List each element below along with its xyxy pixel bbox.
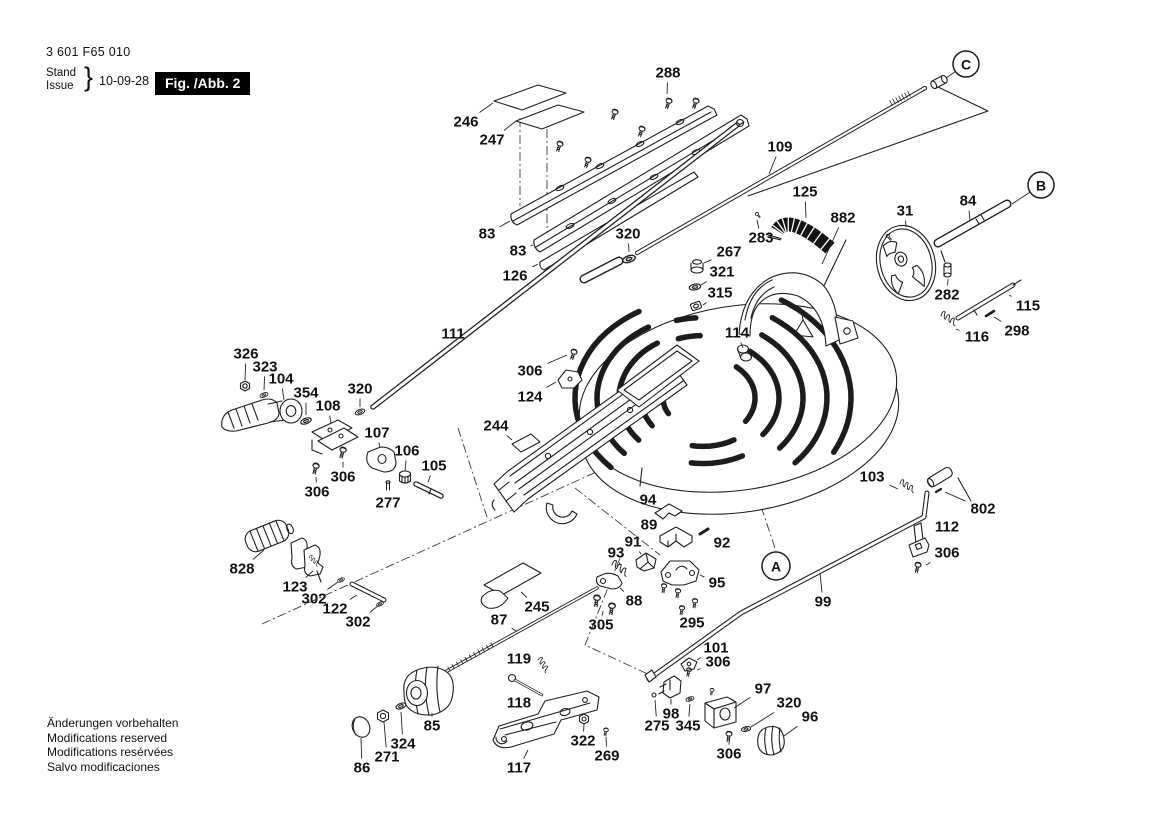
part-callout-112: 112 — [935, 519, 959, 536]
leader-line-124 — [546, 382, 556, 388]
part-callout-302: 302 — [345, 614, 370, 631]
fastener-column — [689, 260, 703, 311]
part-callout-105: 105 — [421, 458, 446, 475]
knob-85 — [404, 666, 454, 715]
leader-line-109 — [769, 157, 776, 175]
leader-line-306 — [547, 355, 567, 363]
table-slot-arc — [678, 336, 700, 339]
leader-line-244 — [507, 436, 512, 441]
part-callout-115: 115 — [1016, 298, 1040, 315]
leader-line-117 — [524, 750, 528, 759]
part-callout-103: 103 — [859, 469, 884, 486]
leader-line-96 — [784, 726, 797, 736]
part-callout-88: 88 — [626, 593, 643, 610]
part-callout-93: 93 — [608, 545, 625, 562]
handwheel-31 — [869, 219, 944, 307]
part-callout-306: 306 — [330, 469, 355, 486]
leader-line-288 — [667, 83, 668, 95]
leader-line-302 — [370, 605, 379, 613]
part-callout-31: 31 — [897, 203, 914, 220]
part-callout-802: 802 — [970, 501, 995, 518]
part-callout-104: 104 — [268, 371, 294, 388]
bracket-97 — [705, 697, 736, 728]
leader-line-315 — [703, 303, 707, 306]
knob-96 — [758, 726, 785, 755]
block-91 — [636, 553, 656, 571]
leader-line-321 — [701, 282, 707, 286]
part-callout-283: 283 — [748, 230, 773, 247]
part-callout-306: 306 — [934, 545, 959, 562]
ref-label-A: A — [771, 559, 781, 575]
part-callout-109: 109 — [767, 139, 792, 156]
part-callout-125: 125 — [792, 184, 817, 201]
spring-116 — [940, 310, 955, 328]
leader-line-87 — [512, 628, 516, 631]
leader-line-283 — [757, 220, 759, 229]
part-callout-116: 116 — [965, 329, 989, 346]
leader-line-271 — [384, 722, 386, 748]
leader-line-83 — [531, 245, 533, 246]
part-callout-126: 126 — [502, 268, 527, 285]
part-callout-271: 271 — [374, 749, 399, 766]
nut-326 — [241, 381, 250, 391]
part-callout-275: 275 — [644, 718, 669, 735]
leader-line-86 — [361, 738, 362, 759]
leader-line-103 — [889, 485, 898, 489]
leader-line-306 — [697, 669, 701, 670]
leader-line-305 — [602, 611, 603, 616]
part-callout-122: 122 — [322, 601, 347, 618]
part-callout-320: 320 — [776, 695, 801, 712]
leader-line-125 — [805, 202, 806, 219]
part-callout-118: 118 — [507, 695, 531, 712]
part-callout-345: 345 — [675, 718, 700, 735]
leader-line-115 — [1009, 295, 1012, 297]
part-callout-288: 288 — [655, 65, 680, 82]
part-callout-269: 269 — [594, 748, 619, 765]
part-callout-245: 245 — [524, 599, 549, 616]
part-callout-85: 85 — [424, 718, 441, 735]
knob-828 — [242, 516, 296, 555]
part-callout-298: 298 — [1004, 323, 1029, 340]
part-callout-320: 320 — [347, 381, 372, 398]
leader-line-99 — [820, 573, 822, 593]
pin-277 — [386, 481, 390, 490]
ref-label-C: C — [961, 57, 971, 73]
part-callout-114: 114 — [725, 325, 750, 342]
leader-line-323 — [264, 377, 265, 391]
part-callout-84: 84 — [960, 193, 977, 210]
part-callout-267: 267 — [716, 244, 741, 261]
leader-line-88 — [620, 588, 624, 592]
pin-275 — [652, 693, 656, 697]
label-plate-244 — [512, 434, 540, 452]
part-callout-108: 108 — [315, 398, 340, 415]
part-callout-91: 91 — [625, 534, 642, 551]
part-callout-86: 86 — [354, 760, 371, 777]
leader-line-267 — [704, 260, 712, 263]
part-callout-95: 95 — [709, 575, 726, 592]
part-callout-94: 94 — [640, 492, 657, 509]
leader-line-306 — [926, 563, 930, 566]
leader-line-83 — [500, 221, 510, 227]
part-callout-321: 321 — [709, 264, 734, 281]
pin-282 — [944, 263, 951, 277]
part-callout-92: 92 — [714, 535, 731, 552]
part-callout-83: 83 — [479, 226, 496, 243]
spring-103 — [899, 478, 914, 495]
nut-271 — [378, 710, 389, 722]
leader-line-101 — [697, 658, 701, 661]
part-callout-124: 124 — [517, 389, 543, 406]
clamp-107 — [367, 447, 396, 472]
nut-267 — [691, 260, 703, 273]
part-callout-306: 306 — [517, 363, 542, 380]
part-callout-277: 277 — [375, 495, 400, 512]
part-callout-111: 111 — [441, 326, 464, 343]
leader-line-269 — [606, 737, 607, 747]
block-98 — [663, 676, 681, 698]
part-callout-244: 244 — [483, 418, 509, 435]
leader-line-275 — [655, 700, 656, 717]
part-callout-96: 96 — [802, 709, 819, 726]
part-callout-117: 117 — [507, 760, 531, 777]
leader-line-91 — [639, 552, 641, 555]
turntable — [492, 273, 912, 536]
part-callout-247: 247 — [479, 132, 504, 149]
part-callout-107: 107 — [364, 425, 389, 442]
spring-119 — [535, 657, 549, 673]
part-callout-320: 320 — [615, 226, 640, 243]
part-callout-106: 106 — [394, 443, 419, 460]
part-callout-315: 315 — [707, 285, 732, 302]
part-callout-282: 282 — [934, 287, 959, 304]
nut-322 — [580, 714, 589, 724]
handwheel-group — [869, 204, 1021, 328]
leader-line-108 — [330, 416, 331, 424]
part-callout-882: 882 — [830, 210, 855, 227]
leader-line-104 — [282, 389, 284, 401]
leader-line-84 — [969, 211, 970, 221]
parts-diagram-page: 3 601 F65 010 Stand Issue } 10-09-28 Fig… — [0, 0, 1169, 826]
saddle — [546, 503, 577, 524]
part-callout-306: 306 — [716, 746, 741, 763]
leader-line-246 — [480, 103, 494, 113]
leader-line-302 — [327, 582, 338, 590]
cap-86 — [349, 714, 373, 740]
part-callout-306: 306 — [304, 484, 329, 501]
part-callout-305: 305 — [588, 617, 613, 634]
part-callout-87: 87 — [491, 612, 508, 629]
leader-line-320 — [751, 713, 774, 728]
leader-line-245 — [521, 592, 527, 598]
leader-line-324 — [401, 712, 402, 735]
leader-line-116 — [956, 329, 960, 330]
nut-106 — [400, 471, 411, 483]
part-callout-306: 306 — [705, 654, 730, 671]
leader-line-345 — [689, 704, 690, 717]
leader-line-122 — [350, 595, 357, 600]
part-callout-322: 322 — [570, 733, 595, 750]
part-callout-89: 89 — [641, 517, 658, 534]
part-callout-295: 295 — [679, 615, 704, 632]
part-callout-828: 828 — [229, 561, 254, 578]
pin-298 — [986, 311, 994, 316]
part-callout-99: 99 — [815, 594, 832, 611]
part-callout-246: 246 — [453, 114, 478, 131]
leader-line-326 — [245, 364, 246, 381]
pin-92 — [700, 529, 708, 534]
leader-line-802 — [945, 492, 966, 501]
leader-line-105 — [428, 476, 430, 483]
clip-112 — [909, 538, 929, 557]
table-slot-arc — [676, 318, 696, 321]
part-callout-119: 119 — [507, 651, 531, 668]
part-callout-83: 83 — [510, 243, 527, 260]
knob-802 — [926, 466, 954, 488]
leader-line-126 — [532, 264, 538, 267]
clip-101 — [681, 658, 697, 671]
leader-line-298 — [994, 317, 1001, 322]
part-callout-97: 97 — [755, 681, 772, 698]
leader-line-106 — [405, 461, 406, 472]
exploded-view-drawing: 2882462478383126320267321315109125882283… — [0, 0, 1169, 826]
nut-315 — [690, 301, 702, 311]
ref-label-B: B — [1036, 178, 1046, 194]
leader-line-95 — [700, 575, 704, 577]
leader-line-247 — [504, 121, 516, 131]
